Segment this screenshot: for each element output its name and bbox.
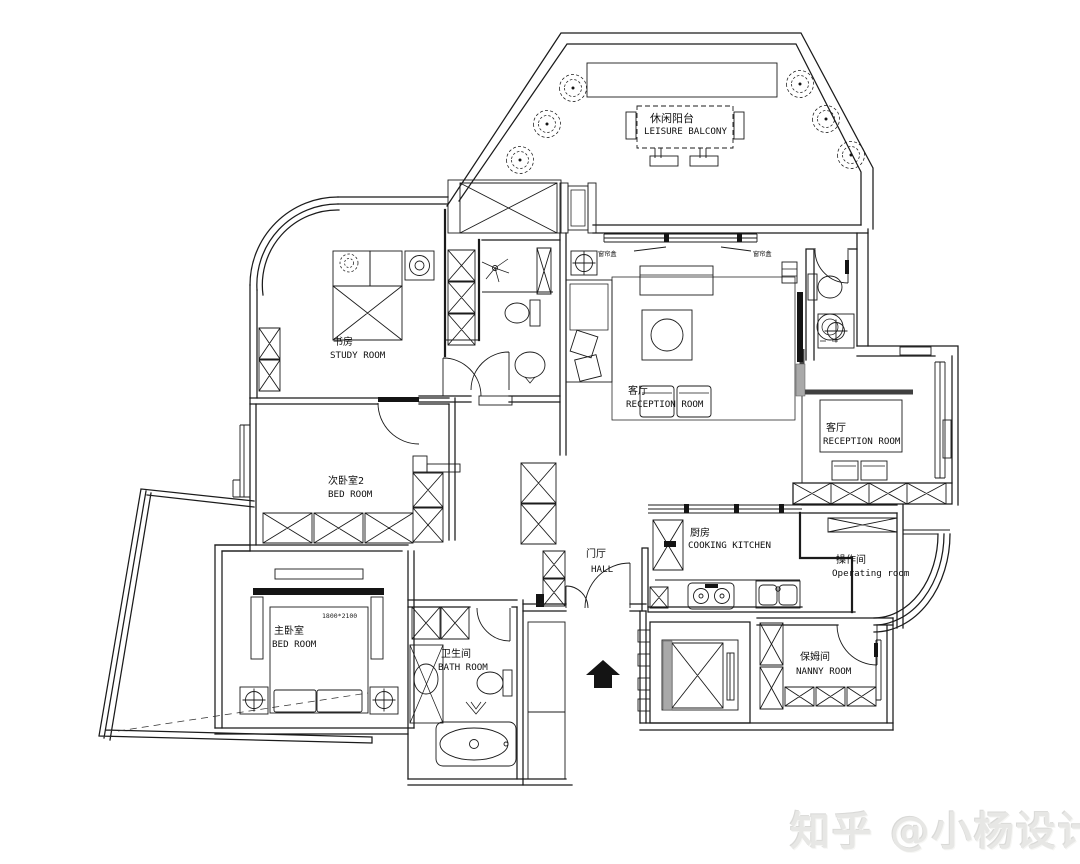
kitchen-label-zh: 厨房 [690, 526, 710, 539]
floor-plan-page: 休闲阳台 LEISURE BALCONY [0, 0, 1080, 864]
top-right-bath-door [815, 250, 848, 283]
entry-arrow-icon [586, 660, 620, 688]
pillow [317, 690, 362, 712]
kitchen: 厨房 COOKING KITCHEN [688, 526, 800, 609]
chair [861, 461, 887, 480]
top-bath-door [471, 352, 509, 390]
chair [832, 461, 858, 480]
operating-room: 操作间 Operating room [832, 553, 910, 579]
headboard-wall [253, 588, 384, 595]
pillow [274, 690, 316, 712]
cushion [575, 355, 602, 382]
toilet-icon [818, 276, 842, 298]
bathroom-label-zh: 卫生间 [441, 647, 471, 660]
hall-label-en: HALL [591, 564, 614, 575]
operating-label-zh: 操作间 [836, 553, 866, 566]
nanny-label-zh: 保姆间 [800, 650, 830, 663]
washbasin-icon [414, 664, 438, 694]
bathroom: 卫生间 BATH ROOM [410, 622, 565, 779]
nanny-label-en: NANNY ROOM [796, 666, 852, 677]
study-room: 书房 STUDY ROOM [330, 251, 434, 361]
kitchen-label-en: COOKING KITCHEN [688, 540, 771, 551]
toilet-icon [505, 303, 529, 323]
study-label-en: STUDY ROOM [330, 350, 386, 361]
nanny-door [837, 625, 877, 665]
tv-icon [797, 292, 803, 362]
dining-area: 客厅 RECEPTION ROOM [820, 400, 902, 480]
master-label-zh: 主卧室 [274, 624, 304, 637]
wall-block [536, 594, 544, 607]
floor-plan-canvas: 休闲阳台 LEISURE BALCONY [0, 0, 1080, 864]
sink-icon [817, 314, 843, 340]
living-label-zh: 客厅 [628, 384, 648, 397]
study-label-zh: 书房 [333, 335, 353, 348]
master-bedroom: 1800*2100 主卧室 BED ROOM [240, 569, 398, 714]
operating-label-en: Operating room [832, 568, 910, 579]
shower-icon [466, 702, 486, 714]
balcony-paving-hatch [587, 63, 777, 97]
ensuite-bath [482, 259, 545, 383]
wall-block [664, 541, 676, 547]
balcony-label-zh: 休闲阳台 [650, 111, 694, 125]
bedroom2-door [378, 403, 419, 444]
hall: 门厅 HALL [586, 547, 620, 688]
sofa [640, 266, 713, 295]
coffee-table [642, 310, 692, 360]
living-label-en: RECEPTION ROOM [626, 399, 704, 410]
leisure-balcony: 休闲阳台 LEISURE BALCONY [447, 33, 873, 229]
balcony-door [560, 183, 596, 233]
study-door [443, 358, 481, 396]
plant-icon [340, 254, 358, 272]
balcony-label-en: LEISURE BALCONY [644, 126, 727, 137]
bedroom2-label-en: BED ROOM [328, 489, 373, 500]
dining-label-zh: 客厅 [826, 421, 846, 434]
bedroom2-label-zh: 次卧室2 [328, 474, 364, 487]
bedroom-2: 次卧室2 BED ROOM [328, 474, 373, 500]
dining-label-en: RECEPTION ROOM [823, 436, 901, 447]
curtain-box-note-right: 窗帘盒 [753, 250, 772, 258]
sofa-chaise [566, 280, 612, 382]
curtain-box-note-left: 窗帘盒 [598, 250, 617, 258]
hall-label-zh: 门厅 [586, 547, 606, 560]
master-label-en: BED ROOM [272, 639, 317, 650]
toilet-icon [503, 670, 512, 696]
exterior-walls [99, 180, 958, 785]
bed-size-dim: 1800*2100 [322, 612, 357, 620]
bathroom-label-en: BATH ROOM [438, 662, 488, 673]
watermark: 知乎 @小杨设计 [790, 799, 1080, 857]
nanny-room: 保姆间 NANNY ROOM [796, 650, 852, 677]
bedroom2-door-leaf [378, 397, 419, 402]
bed [270, 607, 368, 713]
bathroom-door [477, 608, 510, 641]
sink-icon [515, 352, 545, 378]
cushion [570, 330, 598, 358]
